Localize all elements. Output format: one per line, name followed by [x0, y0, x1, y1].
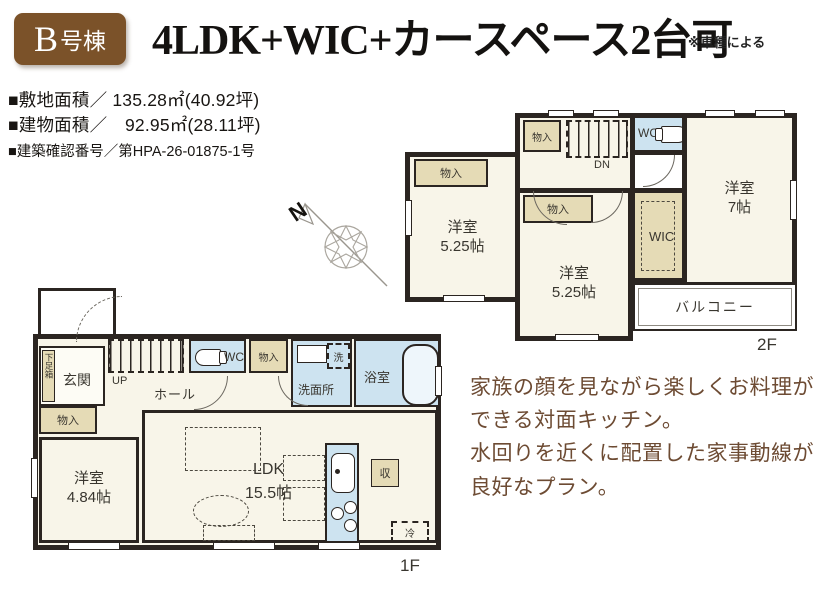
toilet-icon: [195, 349, 221, 366]
window: [790, 180, 797, 220]
wc-2f: WC: [630, 113, 687, 155]
stairs-down-label: DN: [594, 159, 610, 171]
description-line: 良好なプラン。: [470, 471, 820, 504]
staircase-2f: [566, 120, 628, 158]
property-details: ■敷地面積／ 135.28㎡(40.92坪) ■建物面積／ 92.95㎡(28.…: [8, 88, 261, 163]
washer-label: 洗: [334, 349, 344, 364]
stove-burner: [331, 507, 344, 520]
closet-label: 物入: [251, 341, 286, 371]
room-size: 5.25帖: [410, 238, 515, 257]
closet-2f-stair: 物入: [523, 120, 561, 152]
room-name: 洋室: [520, 265, 628, 284]
compass-rose: N: [283, 190, 395, 294]
room-2f-west: 物入 洋室 5.25帖: [405, 152, 520, 302]
closet-label: 物入: [41, 408, 95, 432]
window: [31, 458, 38, 498]
description-line: 家族の顔を見ながら楽しくお料理が: [470, 371, 820, 404]
wic-2f: WIC: [630, 188, 687, 283]
window: [705, 110, 735, 117]
window: [548, 110, 574, 117]
staircase-1f: [108, 339, 184, 373]
page-title: 4LDK+WIC+カースペース2台可: [152, 6, 732, 67]
washbasin-icon: [297, 345, 327, 363]
window: [68, 542, 120, 550]
wc-label: WC: [224, 350, 244, 364]
shoe-box-label: 下足箱: [43, 353, 55, 379]
window: [555, 334, 599, 341]
room-size: 5.25帖: [520, 284, 628, 303]
closet-label: 物入: [525, 122, 559, 150]
room-2f-center-label: 洋室 5.25帖: [520, 265, 628, 303]
door-arc: [643, 155, 675, 187]
floor-plan-1f: 下足箱 玄関 UP ホール WC 物入 洗 洗面所 浴室: [28, 288, 453, 588]
round-table-outline: [193, 495, 249, 527]
genkan-1f: 下足箱 玄関: [39, 346, 105, 406]
building-badge-initial: B: [34, 21, 58, 57]
closet-1f-west: 物入: [39, 406, 97, 434]
description-line: 水回りを近くに配置した家事動線が: [470, 437, 820, 470]
ldk-1f: LDK 15.5帖 収 冷: [142, 410, 438, 543]
stove-burner: [344, 519, 357, 532]
sales-description: 家族の顔を見ながら楽しくお料理が できる対面キッチン。 水回りを近くに配置した家…: [470, 371, 820, 504]
site-area: ■敷地面積／ 135.28㎡(40.92坪): [8, 88, 261, 113]
floor-label-2f: 2F: [757, 335, 777, 355]
balcony-label: バルコニー: [675, 297, 755, 317]
fridge-label: 冷: [405, 525, 415, 540]
bathtub-icon: [402, 344, 439, 406]
bath-label: 浴室: [364, 367, 390, 386]
furniture-outline: [203, 525, 255, 541]
floor-label-1f: 1F: [400, 556, 420, 576]
faucet-dot: [335, 469, 340, 474]
window: [435, 366, 442, 396]
room-name: 洋室: [42, 470, 136, 489]
hall-1f-label: ホール: [154, 384, 196, 403]
window: [213, 542, 275, 550]
balcony-2f: バルコニー: [633, 283, 797, 331]
window: [405, 200, 412, 236]
shoe-box: 下足箱: [42, 350, 55, 402]
room-2f-east-label: 洋室 7帖: [687, 180, 792, 218]
title-note: ※車種による: [688, 32, 765, 51]
stairs-up-label: UP: [112, 375, 127, 387]
closet-2f-west: 物入: [414, 159, 488, 187]
room-2f-west-label: 洋室 5.25帖: [410, 219, 515, 257]
balcony-inner: バルコニー: [638, 288, 792, 326]
stove-burner: [344, 501, 357, 514]
hall-2f: 物入 DN: [515, 113, 635, 193]
window: [593, 110, 619, 117]
storage-1f: 収: [371, 459, 399, 487]
kitchen-counter: [325, 443, 359, 543]
genkan-label: 玄関: [63, 370, 91, 390]
building-badge-suffix: 号棟: [60, 22, 106, 56]
dining-table-outline: [185, 427, 261, 471]
wc-1f: WC: [189, 339, 246, 373]
room-size: 4.84帖: [42, 489, 136, 508]
wic-label: WIC: [649, 229, 674, 244]
room-1f-west-label: 洋室 4.84帖: [42, 470, 136, 508]
building-confirmation-number: ■建築確認番号／第HPA-26-01875-1号: [8, 142, 261, 163]
room-name: 洋室: [410, 219, 515, 238]
fridge-space: 冷: [391, 521, 429, 543]
room-size: 7帖: [687, 199, 792, 218]
flyer-page: B 号棟 4LDK+WIC+カースペース2台可 ※車種による ■敷地面積／ 13…: [0, 0, 822, 592]
description-line: できる対面キッチン。: [470, 404, 820, 437]
window: [318, 542, 360, 550]
building-area: ■建物面積／ 92.95㎡(28.11坪): [8, 113, 261, 138]
floor-plan-2f: 物入 洋室 5.25帖 物入 DN WC 洋室 7帖: [405, 95, 797, 353]
room-name: 洋室: [687, 180, 792, 199]
building-badge: B 号棟: [14, 13, 126, 65]
closet-label: 物入: [416, 161, 486, 185]
window: [755, 110, 785, 117]
room-1f-west: 洋室 4.84帖: [39, 437, 139, 543]
furniture-outline: [283, 455, 325, 481]
closet-1f-hall: 物入: [249, 339, 288, 373]
bathroom-1f: 浴室: [354, 339, 440, 407]
washer-space: 洗: [327, 343, 350, 369]
room-2f-east: 洋室 7帖: [682, 113, 797, 287]
storage-label: 収: [372, 460, 398, 486]
furniture-outline: [283, 487, 325, 521]
